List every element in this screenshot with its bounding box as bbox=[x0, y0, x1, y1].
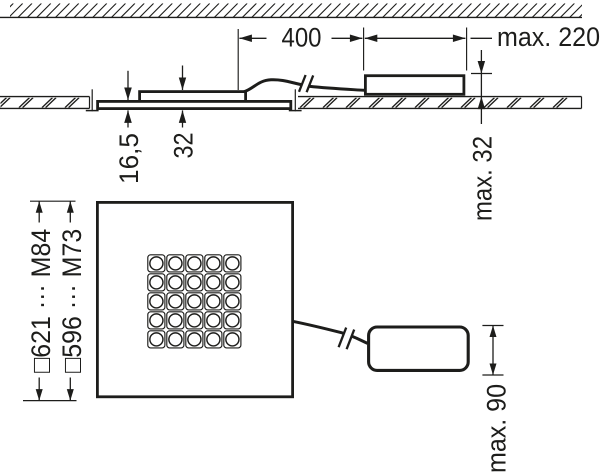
svg-text:□621 ··· M84: □621 ··· M84 bbox=[26, 229, 56, 373]
svg-text:□596 ··· M73: □596 ··· M73 bbox=[57, 229, 87, 373]
svg-text:16,5: 16,5 bbox=[114, 133, 144, 184]
svg-text:max. 32: max. 32 bbox=[468, 136, 498, 221]
svg-text:32: 32 bbox=[168, 133, 198, 159]
svg-text:max. 220: max. 220 bbox=[497, 22, 600, 52]
svg-text:400: 400 bbox=[282, 23, 322, 53]
svg-text:max. 90: max. 90 bbox=[482, 384, 512, 473]
